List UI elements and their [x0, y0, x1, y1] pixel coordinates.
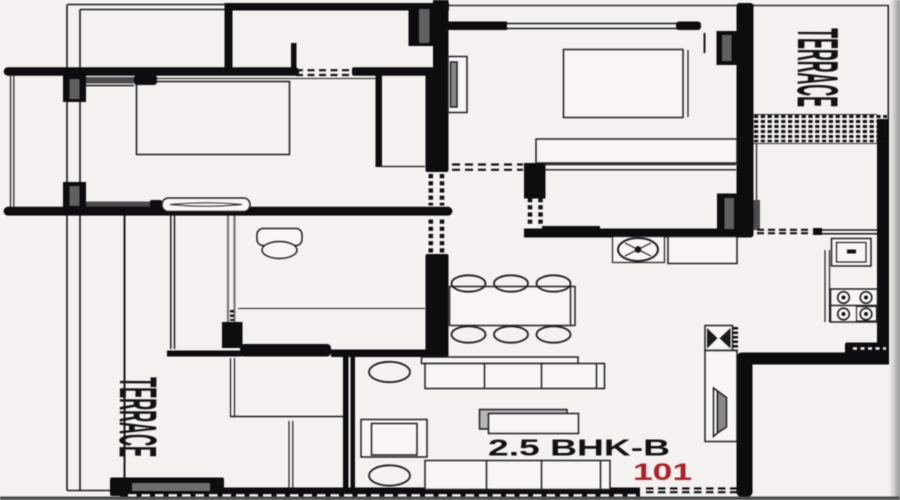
svg-text:101: 101 [633, 459, 692, 486]
svg-text:TERRACE: TERRACE [785, 28, 850, 107]
svg-text:2.5 BHK-B: 2.5 BHK-B [488, 435, 670, 461]
svg-text:TERRACE: TERRACE [108, 377, 167, 457]
